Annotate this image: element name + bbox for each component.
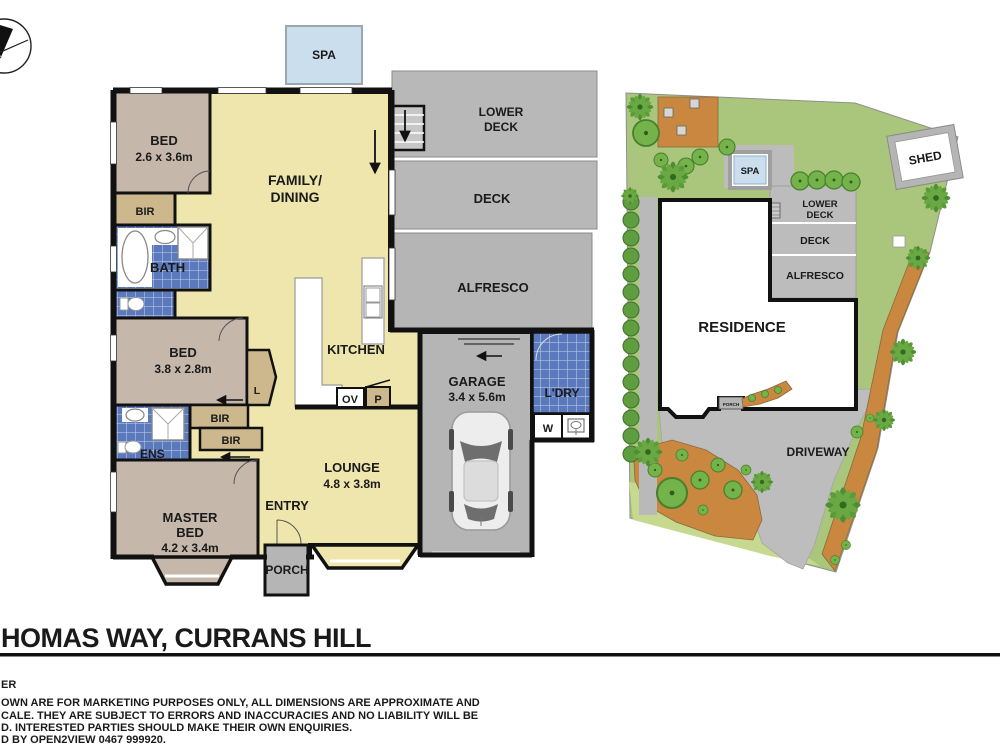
bir2-closet: BIR: [190, 400, 248, 428]
lounge-bay-window: [312, 545, 418, 568]
bir1-closet: BIR: [115, 193, 175, 225]
site-lower-deck-label-2: DECK: [807, 210, 834, 221]
bed2-dims: 3.8 x 2.8m: [154, 362, 211, 376]
sink-bowl: [366, 303, 380, 317]
lounge-label: LOUNGE: [324, 460, 380, 475]
page-title: HOMAS WAY, CURRANS HILL: [1, 623, 371, 653]
master-label-2: BED: [176, 525, 203, 540]
lower-deck-label-1: LOWER: [479, 105, 524, 119]
bath-label: BATH: [150, 260, 185, 275]
site-deck-label: DECK: [800, 235, 830, 247]
family-dining-label-2: DINING: [271, 189, 320, 205]
bir3-label: BIR: [222, 435, 241, 447]
site-lower-deck-label-1: LOWER: [802, 199, 837, 210]
site-alfresco-label: ALFRESCO: [786, 270, 844, 282]
garage-dims: 3.4 x 5.6m: [448, 390, 505, 404]
master-dims: 4.2 x 3.4m: [161, 541, 218, 555]
disclaimer-line-4: D BY OPEN2VIEW 0467 999920.: [1, 734, 166, 746]
bed1-dims: 2.6 x 3.6m: [135, 150, 192, 164]
site-utility-box: [893, 236, 905, 247]
spa-label: SPA: [312, 48, 336, 62]
master-label-1: MASTER: [163, 510, 219, 525]
site-porch: PORCH: [719, 397, 743, 409]
porch-area: PORCH: [265, 545, 309, 595]
disclaimer-line-1: OWN ARE FOR MARKETING PURPOSES ONLY, ALL…: [1, 697, 480, 709]
oven-box: OV: [337, 388, 364, 407]
laundry-tub-icon: [562, 414, 590, 440]
disclaimer-line-2: CALE. THEY ARE SUBJECT TO ERRORS AND INA…: [1, 710, 478, 722]
toilet-icon: [128, 298, 144, 311]
site-residence-label: RESIDENCE: [698, 319, 786, 336]
deck-area: DECK: [392, 161, 597, 229]
site-hedge-row: [623, 194, 639, 462]
disclaimer-line-0: ER: [1, 679, 16, 691]
site-driveway-label: DRIVEWAY: [787, 445, 850, 459]
ens-room: ENS: [115, 405, 190, 461]
washer-box: W: [534, 414, 562, 440]
lounge-dims: 4.8 x 3.8m: [323, 477, 380, 491]
master-bed-room: MASTER BED 4.2 x 3.4m: [115, 460, 258, 557]
alfresco-area: ALFRESCO: [392, 233, 592, 328]
compass-icon: [0, 19, 31, 73]
site-plan: LOWER DECK DECK ALFRESCO SPA RESIDENCE P…: [621, 93, 963, 572]
bed2-label: BED: [169, 345, 196, 360]
family-dining-label-1: FAMILY/: [268, 172, 322, 188]
wc-room: [115, 290, 175, 318]
laundry-label: L'DRY: [544, 386, 579, 400]
washer-label: W: [543, 423, 554, 435]
bed2-room: BED 3.8 x 2.8m: [115, 318, 247, 405]
site-mulch-top: [658, 97, 718, 147]
linen-closet: L: [247, 350, 276, 405]
sink-icon: [155, 231, 175, 244]
laundry-room: L'DRY W: [532, 332, 592, 440]
linen-label: L: [254, 385, 261, 397]
sink-icon: [126, 409, 144, 421]
footer: HOMAS WAY, CURRANS HILL ER OWN ARE FOR M…: [0, 623, 1000, 746]
pantry-label: P: [374, 394, 381, 406]
site-spa-label: SPA: [741, 166, 760, 177]
garage-room: GARAGE 3.4 x 5.6m: [420, 332, 532, 557]
site-spa: SPA: [728, 150, 772, 190]
floorplan-page: SPA LOWER DECK DECK ALFRESCO FAMILY/ DIN…: [0, 0, 1000, 750]
bir2-label: BIR: [211, 413, 230, 425]
alfresco-label: ALFRESCO: [457, 280, 529, 295]
porch-label: PORCH: [265, 563, 308, 577]
deck-label: DECK: [474, 191, 511, 206]
bath-room: BATH: [115, 225, 210, 290]
toilet-icon: [125, 441, 141, 453]
site-deck-block: LOWER DECK DECK ALFRESCO: [768, 186, 856, 298]
entry-label: ENTRY: [265, 498, 309, 513]
garage-label: GARAGE: [448, 374, 505, 389]
sink-bowl: [366, 288, 380, 302]
lower-deck-label-2: DECK: [484, 120, 518, 134]
bed1-room: BED 2.6 x 3.6m: [115, 92, 210, 193]
master-bay-window: [152, 557, 232, 584]
site-shed: SHED: [887, 125, 963, 190]
disclaimer-line-3: D. INTERESTED PARTIES SHOULD MAKE THEIR …: [1, 722, 352, 734]
floor-plan: SPA LOWER DECK DECK ALFRESCO FAMILY/ DIN…: [111, 26, 598, 595]
site-porch-label: PORCH: [723, 402, 740, 407]
bathtub-icon: [122, 231, 148, 283]
spa-box: SPA: [286, 26, 362, 84]
car-icon: [449, 412, 513, 530]
bed1-label: BED: [150, 133, 177, 148]
bir1-label: BIR: [136, 206, 155, 218]
floorplan-drawing: SPA LOWER DECK DECK ALFRESCO FAMILY/ DIN…: [0, 0, 1000, 750]
title-divider: [0, 653, 1000, 657]
oven-label: OV: [342, 394, 359, 406]
